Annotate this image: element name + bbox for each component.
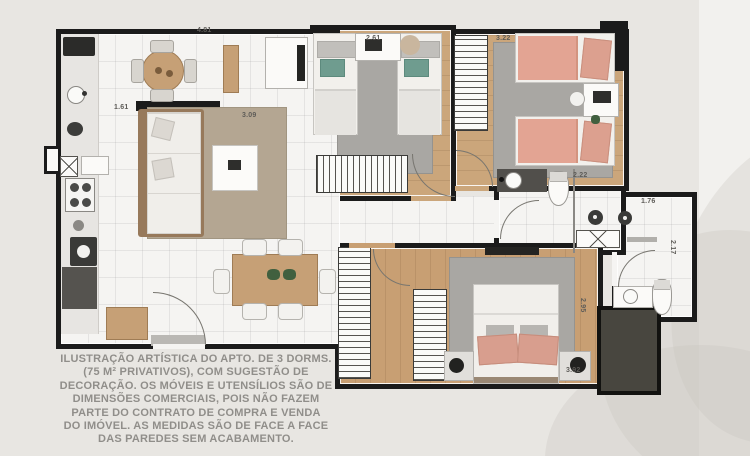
plant-icon [591,115,600,124]
disclaimer-line: (75 M² PRIVATIVOS), COM SUGESTÃO DE [28,366,364,379]
dark-counter [62,267,97,309]
burner-icon [82,198,91,207]
disclaimer-line: DO IMÓVEL. AS MEDIDAS SÃO DE FACE A FACE [28,420,364,433]
toilet-tank [550,172,567,182]
laundry-sink-icon [81,156,109,175]
pillow [404,59,429,77]
prep-sink-icon [70,237,97,266]
table-decor-icon [155,67,162,74]
dining-chair [278,303,303,320]
toilet-tank [654,280,670,290]
technical-area [597,306,661,395]
chair [150,40,174,53]
dining-chair [319,269,336,294]
shower-drain [623,216,627,220]
kitchen-basin-icon [67,122,83,136]
pillow [517,334,559,366]
bathroom-sink-icon [505,172,522,189]
desk-chair [569,91,585,107]
dimension-label: 4.81 [197,27,211,35]
dining-chair [242,303,267,320]
sideboard [223,45,239,93]
blanket [518,119,578,163]
coffee-table-decor-icon [228,160,241,170]
pillow [317,41,356,58]
lamp-icon [449,358,464,373]
table-decor-icon [166,70,173,77]
shower-head-icon [618,211,632,225]
shower-head-icon [588,210,603,225]
tv-icon [297,45,305,81]
pillow [477,334,519,366]
tv-icon [485,247,539,255]
dimension-label: 3.92 [566,367,580,375]
dimension-label: 2.95 [578,298,586,312]
plant-icon [267,269,280,280]
faucet-icon [82,91,87,96]
dining-chair [213,269,230,294]
burner-icon [70,183,79,192]
dining-chair [278,239,303,256]
laundry-tank-icon [60,156,78,177]
wardrobe [413,289,447,381]
headboard [474,377,558,383]
blanket [399,89,440,135]
dimension-label: 2.22 [573,172,587,180]
dining-table [232,254,318,306]
sofa [147,112,201,234]
entry-cabinet [106,307,148,340]
shower-partition [573,169,575,253]
linen-cabinet [576,230,620,248]
wardrobe [338,247,371,379]
disclaimer-line: DAS PAREDES SEM ACABAMENTO. [28,433,364,446]
dimension-label: 1.61 [114,104,128,112]
wardrobe [454,35,488,131]
bathroom1-door-opening [494,200,499,238]
disclaimer-line: ILUSTRAÇÃO ARTÍSTICA DO APTO. DE 3 DORMS… [28,353,364,366]
burner-icon [82,183,91,192]
disclaimer-line: DECORAÇÃO. OS MÓVEIS E UTENSÍLIOS SÃO DE [28,380,364,393]
bathroom-sink-icon [623,289,638,304]
single-bed [515,33,615,83]
dimension-label: 1.76 [641,198,655,206]
floorplan-illustration: 4.81 1.61 3.09 2.61 3.22 2.22 1.76 2.17 … [0,0,750,456]
blanket [315,89,356,135]
sofa-pillow [151,157,174,180]
toilet-icon [652,279,672,315]
shower-drain [593,215,597,219]
sink-bowl-icon [77,245,90,258]
dining-chair [242,239,267,256]
pillow [580,38,612,81]
fridge-icon [63,37,95,56]
wardrobe [316,155,408,193]
faucet-icon [499,177,504,182]
single-bed [313,33,358,135]
dimension-label: 3.22 [496,35,510,43]
disclaimer-line: PARTE DO CONTRATO DE COMPRA E VENDA [28,407,364,420]
master-door-opening [349,243,395,248]
pillow [320,59,345,77]
disclaimer-text: ILUSTRAÇÃO ARTÍSTICA DO APTO. DE 3 DORMS… [28,353,364,447]
blanket-fold [474,313,558,315]
single-bed [515,116,615,166]
pillow [580,121,612,164]
double-bed [473,284,559,384]
round-dining-table [142,50,184,92]
room-corridor [338,196,498,250]
laptop-icon [593,91,611,103]
dimension-label: 2.61 [366,35,380,43]
plant-icon [283,269,296,280]
round-rug [400,35,420,55]
blanket [518,36,578,80]
dimension-label: 3.09 [242,112,256,120]
wall-basin [44,146,61,174]
bedroom1-door-opening [411,196,451,201]
burner-icon [70,198,79,207]
disclaimer-line: DIMENSÕES COMERCIAIS, POIS NÃO FAZEM [28,393,364,406]
toilet-icon [548,171,569,206]
sofa-pillow [151,117,175,141]
chair [131,59,144,83]
stove-icon [65,178,95,212]
dimension-label: 2.17 [668,240,676,254]
chair [184,59,197,83]
chair [150,89,174,102]
small-sink-icon [73,220,84,231]
bathroom-shelf [627,237,657,242]
bathroom2-door-opening [612,252,617,286]
